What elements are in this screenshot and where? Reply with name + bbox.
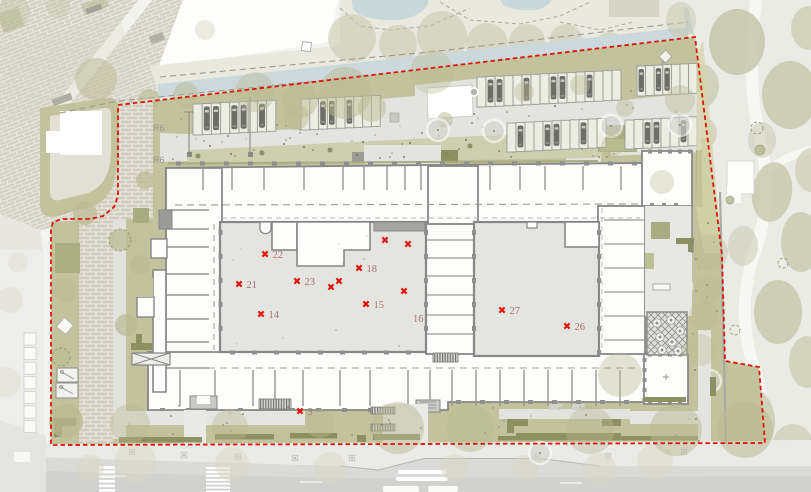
svg-text:21: 21	[247, 280, 258, 291]
svg-text:3: 3	[308, 407, 313, 418]
svg-text:22: 22	[273, 250, 284, 261]
svg-text:16: 16	[413, 314, 424, 325]
svg-text:R6: R6	[153, 155, 165, 165]
svg-text:R6: R6	[153, 123, 165, 133]
svg-text:26: 26	[575, 322, 586, 333]
svg-text:27: 27	[510, 306, 521, 317]
svg-text:15: 15	[374, 300, 385, 311]
svg-text:14: 14	[269, 310, 280, 321]
svg-text:18: 18	[367, 264, 378, 275]
svg-text:23: 23	[305, 277, 316, 288]
